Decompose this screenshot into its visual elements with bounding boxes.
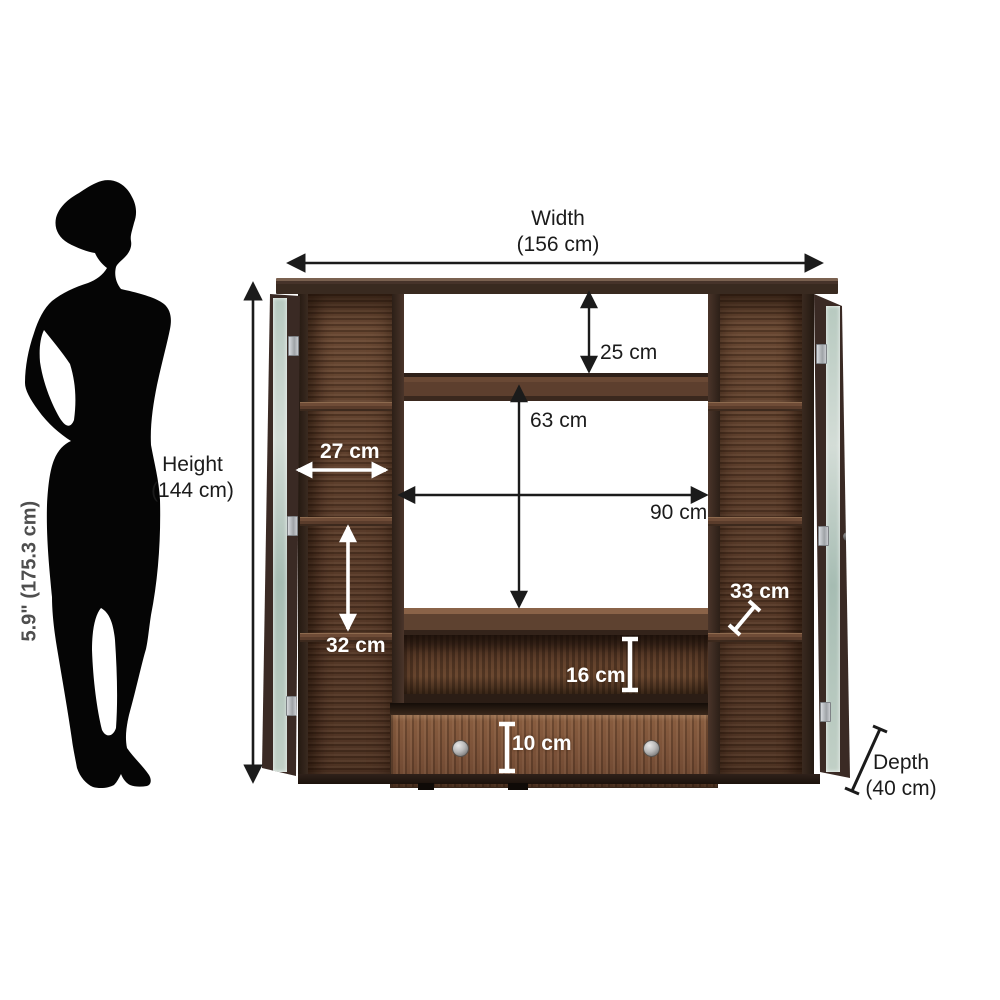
- recess-bottom-board: [404, 694, 708, 703]
- door-hinge: [818, 526, 829, 546]
- door-hinge: [286, 696, 297, 716]
- product-dimension-diagram: Width (156 cm) Height (144 cm) Depth (40…: [0, 0, 1000, 1000]
- door-hinge: [820, 702, 831, 722]
- side-shelf-width-label: 27 cm: [320, 440, 380, 464]
- center-lower-shelf-board: [404, 608, 708, 635]
- door-hinge: [288, 336, 299, 356]
- cabinet-base: [298, 774, 820, 784]
- drawer-knob: [643, 740, 660, 757]
- depth-label-line2: (40 cm): [856, 776, 946, 802]
- cabinet-foot: [508, 783, 528, 790]
- tv-opening-width-label: 90 cm: [650, 500, 707, 526]
- left-shelf-board: [300, 517, 393, 526]
- left-shelf-board: [300, 402, 393, 411]
- right-divider-panel: [708, 294, 720, 776]
- door-hinge: [287, 516, 298, 536]
- right-glass-door: [812, 294, 854, 782]
- right-shelf-board: [708, 402, 804, 411]
- right-shelf-board: [708, 633, 804, 642]
- side-shelf-height-label: 32 cm: [326, 634, 386, 658]
- center-open-recess: [404, 635, 708, 694]
- height-label-line1: Height: [135, 452, 250, 478]
- center-upper-shelf-board: [404, 373, 708, 401]
- left-column-interior: [308, 294, 392, 776]
- right-column-interior: [720, 294, 802, 776]
- height-label-line2: (144 cm): [135, 478, 250, 504]
- depth-label: Depth (40 cm): [856, 750, 946, 802]
- cabinet-top-board: [276, 278, 838, 294]
- cabinet-right-wall: [802, 294, 814, 776]
- door-hinge: [816, 344, 827, 364]
- cabinet-left-wall: [298, 294, 308, 776]
- depth-label-line1: Depth: [856, 750, 946, 776]
- cabinet-foot: [418, 783, 434, 790]
- width-label-line2: (156 cm): [478, 232, 638, 258]
- drawer-knob: [452, 740, 469, 757]
- width-label-line1: Width: [478, 206, 638, 232]
- scale-figure-label: 5.9" (175.3 cm): [19, 502, 42, 642]
- door-knob: [843, 532, 852, 541]
- height-label: Height (144 cm): [135, 452, 250, 504]
- right-shelf-board: [708, 517, 804, 526]
- left-glass-door: [260, 294, 302, 780]
- open-shelf-height-label: 16 cm: [566, 664, 626, 688]
- top-shelf-height-label: 25 cm: [600, 340, 657, 366]
- shelf-depth-label: 33 cm: [730, 580, 790, 604]
- tv-opening-height-label: 63 cm: [530, 408, 587, 434]
- left-door-glass: [273, 298, 287, 772]
- width-label: Width (156 cm): [478, 206, 638, 258]
- drawer-height-label: 10 cm: [512, 732, 572, 756]
